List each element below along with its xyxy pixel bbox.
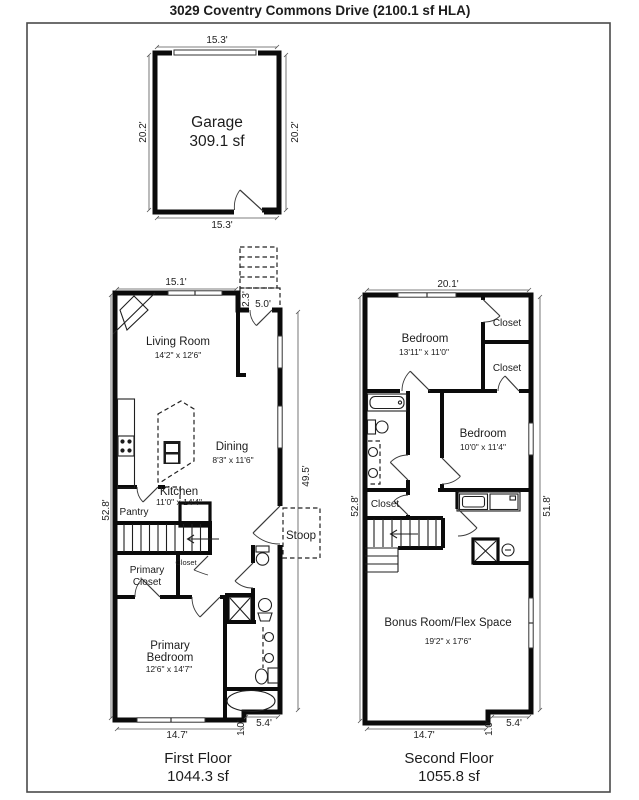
sf-dim-left: 52.8' [350, 495, 361, 516]
garage-plan: Garage 309.1 sf 15.3' 15.3' 20.2' 20.2' [138, 35, 301, 231]
door-leaf [505, 376, 519, 391]
toilet-tank-icon [268, 668, 278, 683]
door-leaf [235, 563, 253, 581]
toilet-icon [376, 421, 388, 433]
stoop-door [253, 506, 283, 545]
first-floor-area: 1044.3 sf [167, 768, 230, 785]
door-leaf [410, 371, 430, 391]
stove-icon [118, 436, 134, 456]
kitchen-size: 11'0" x 14'4" [156, 497, 202, 507]
toilet-icon [256, 553, 268, 565]
primary-bedroom-label-2: Bedroom [147, 652, 194, 664]
door-swing [402, 371, 410, 391]
bonus-room-label: Bonus Room/Flex Space [384, 617, 511, 629]
floor-plan-drawing: 3029 Coventry Commons Drive (2100.1 sf H… [0, 0, 639, 800]
primary-closet-label-1: Primary [130, 565, 164, 576]
window [529, 423, 533, 455]
drain-icon [398, 401, 401, 404]
first-floor-plan: Living Room 14'2" x 12'6" Dining 8'3" x … [101, 247, 320, 785]
second-floor-bath-fixtures [368, 394, 407, 484]
kitchen-fixtures [118, 399, 195, 488]
sink-icon [265, 633, 274, 642]
sink-icon [369, 469, 378, 478]
staircase-second-floor [365, 518, 443, 572]
windows-second-floor [398, 292, 533, 648]
door-swing [192, 597, 200, 617]
stoop-label: Stoop [286, 530, 316, 542]
door-swing [194, 570, 208, 575]
sf-dim-top: 20.1' [437, 279, 458, 290]
door-leaf [458, 509, 477, 528]
door-swing [390, 455, 408, 462]
ff-dim-right: 49.5' [301, 465, 312, 486]
corner-fireplace-icon [113, 293, 155, 334]
closet-label: Closet [175, 558, 197, 567]
window [278, 336, 282, 368]
garage-label: Garage [191, 114, 243, 131]
garage-dim-left: 20.2' [138, 121, 149, 142]
toilet-icon [256, 669, 268, 684]
garage-area-label: 309.1 sf [189, 133, 245, 150]
primary-bedroom-size: 12'6" x 14'7" [146, 664, 193, 674]
primary-bedroom-label-1: Primary [150, 640, 190, 652]
closet1-label: Closet [493, 318, 522, 329]
window [278, 406, 282, 448]
second-floor-label: Second Floor [404, 750, 493, 767]
garage-dim-top: 15.3' [206, 35, 227, 46]
door-swing [137, 487, 143, 502]
sf-dim-bottom: 14.7' [413, 730, 434, 741]
ff-dim-bottom-jog: 1.0' [236, 720, 247, 736]
pedestal-sink-icon [259, 599, 272, 612]
entry-wall [238, 310, 246, 375]
bathtub-icon [227, 691, 275, 712]
sf-dim-bottom-jog: 1.0' [484, 720, 495, 736]
laundry-area [457, 492, 531, 563]
closet-walls [483, 295, 531, 391]
floor-plan-page: 3029 Coventry Commons Drive (2100.1 sf H… [0, 0, 639, 800]
toilet-tank-icon [256, 546, 269, 552]
ff-dim-entry-depth: 2.3' [241, 291, 252, 307]
ff-dim-left: 52.8' [101, 499, 112, 520]
living-room-size: 14'2" x 12'6" [155, 350, 202, 360]
first-floor-bath-fixtures [227, 546, 278, 712]
dining-size: 8'3" x 11'6" [212, 455, 253, 465]
toilet-tank-icon [368, 420, 376, 434]
door-swing [253, 533, 280, 544]
living-room-label: Living Room [146, 336, 210, 348]
ff-dim-bottom: 14.7' [166, 730, 187, 741]
garage-door-icon [174, 50, 256, 55]
second-floor-area: 1055.8 sf [418, 768, 481, 785]
ff-dim-entry-width: 5.0' [255, 299, 271, 310]
page-title: 3029 Coventry Commons Drive (2100.1 sf H… [170, 3, 471, 18]
door-swing [442, 476, 460, 484]
door-swing [458, 528, 477, 536]
closet3-label: Closet [371, 499, 400, 510]
bedroom2-label: Bedroom [460, 428, 507, 440]
bonus-room-size: 19'2" x 17'6" [425, 636, 472, 646]
pantry-label: Pantry [120, 507, 149, 518]
sink-icon [369, 448, 378, 457]
garage-dim-right: 20.2' [290, 121, 301, 142]
door-swing [235, 581, 253, 588]
first-floor-label: First Floor [164, 750, 232, 767]
door-leaf [484, 300, 501, 316]
door-leaf [442, 458, 460, 476]
sf-dim-right: 51.8' [542, 495, 553, 516]
primary-closet-label-2: Closet [133, 577, 162, 588]
door-leaf [253, 506, 280, 533]
ff-dim-bottom-right: 5.4' [256, 718, 272, 729]
bedroom1-size: 13'11" x 11'0" [399, 347, 449, 357]
door-leaf [200, 597, 220, 617]
dining-label: Dining [216, 441, 249, 453]
door-swing [498, 376, 505, 391]
bedroom1-label: Bedroom [402, 333, 449, 345]
sink-icon [265, 654, 274, 663]
bedroom2-size: 10'0" x 11'4" [460, 442, 506, 452]
ff-dim-top: 15.1' [165, 277, 186, 288]
sf-dim-bottom-right: 5.4' [506, 718, 522, 729]
second-floor-plan: Bedroom 13'11" x 11'0" Closet Closet Bed… [350, 279, 553, 785]
laundry-counter [457, 492, 520, 511]
dim-line [284, 53, 288, 212]
door-leaf [390, 462, 408, 480]
garage-dim-bottom: 15.3' [211, 220, 232, 231]
closet2-label: Closet [493, 363, 522, 374]
